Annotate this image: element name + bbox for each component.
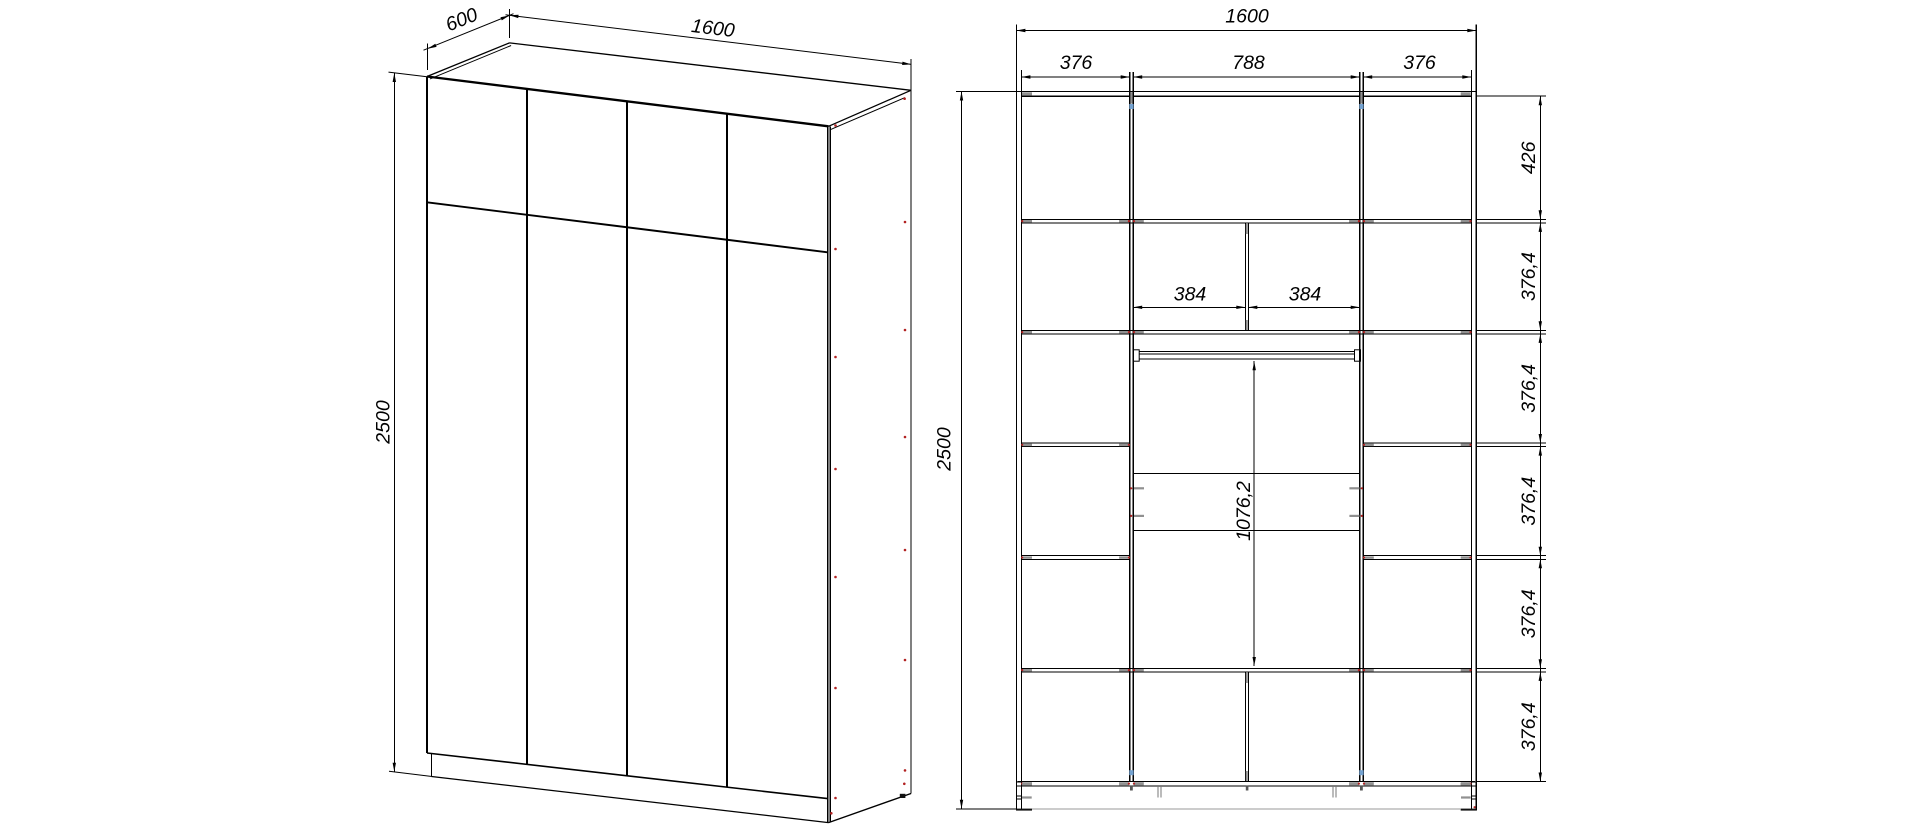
svg-text:376,4: 376,4 xyxy=(1518,589,1540,638)
svg-text:376,4: 376,4 xyxy=(1518,364,1540,413)
svg-text:384: 384 xyxy=(1289,283,1322,305)
svg-text:384: 384 xyxy=(1174,283,1207,305)
svg-text:426: 426 xyxy=(1518,141,1540,174)
svg-text:376,4: 376,4 xyxy=(1518,252,1540,301)
svg-text:376: 376 xyxy=(1060,52,1093,74)
svg-text:376,4: 376,4 xyxy=(1518,477,1540,526)
svg-text:2500: 2500 xyxy=(934,427,956,472)
svg-text:376: 376 xyxy=(1403,52,1436,74)
svg-text:1076,2: 1076,2 xyxy=(1233,481,1255,541)
svg-text:1600: 1600 xyxy=(1225,6,1269,28)
svg-text:376,4: 376,4 xyxy=(1518,702,1540,751)
svg-text:2500: 2500 xyxy=(373,400,395,445)
svg-text:788: 788 xyxy=(1232,52,1265,74)
